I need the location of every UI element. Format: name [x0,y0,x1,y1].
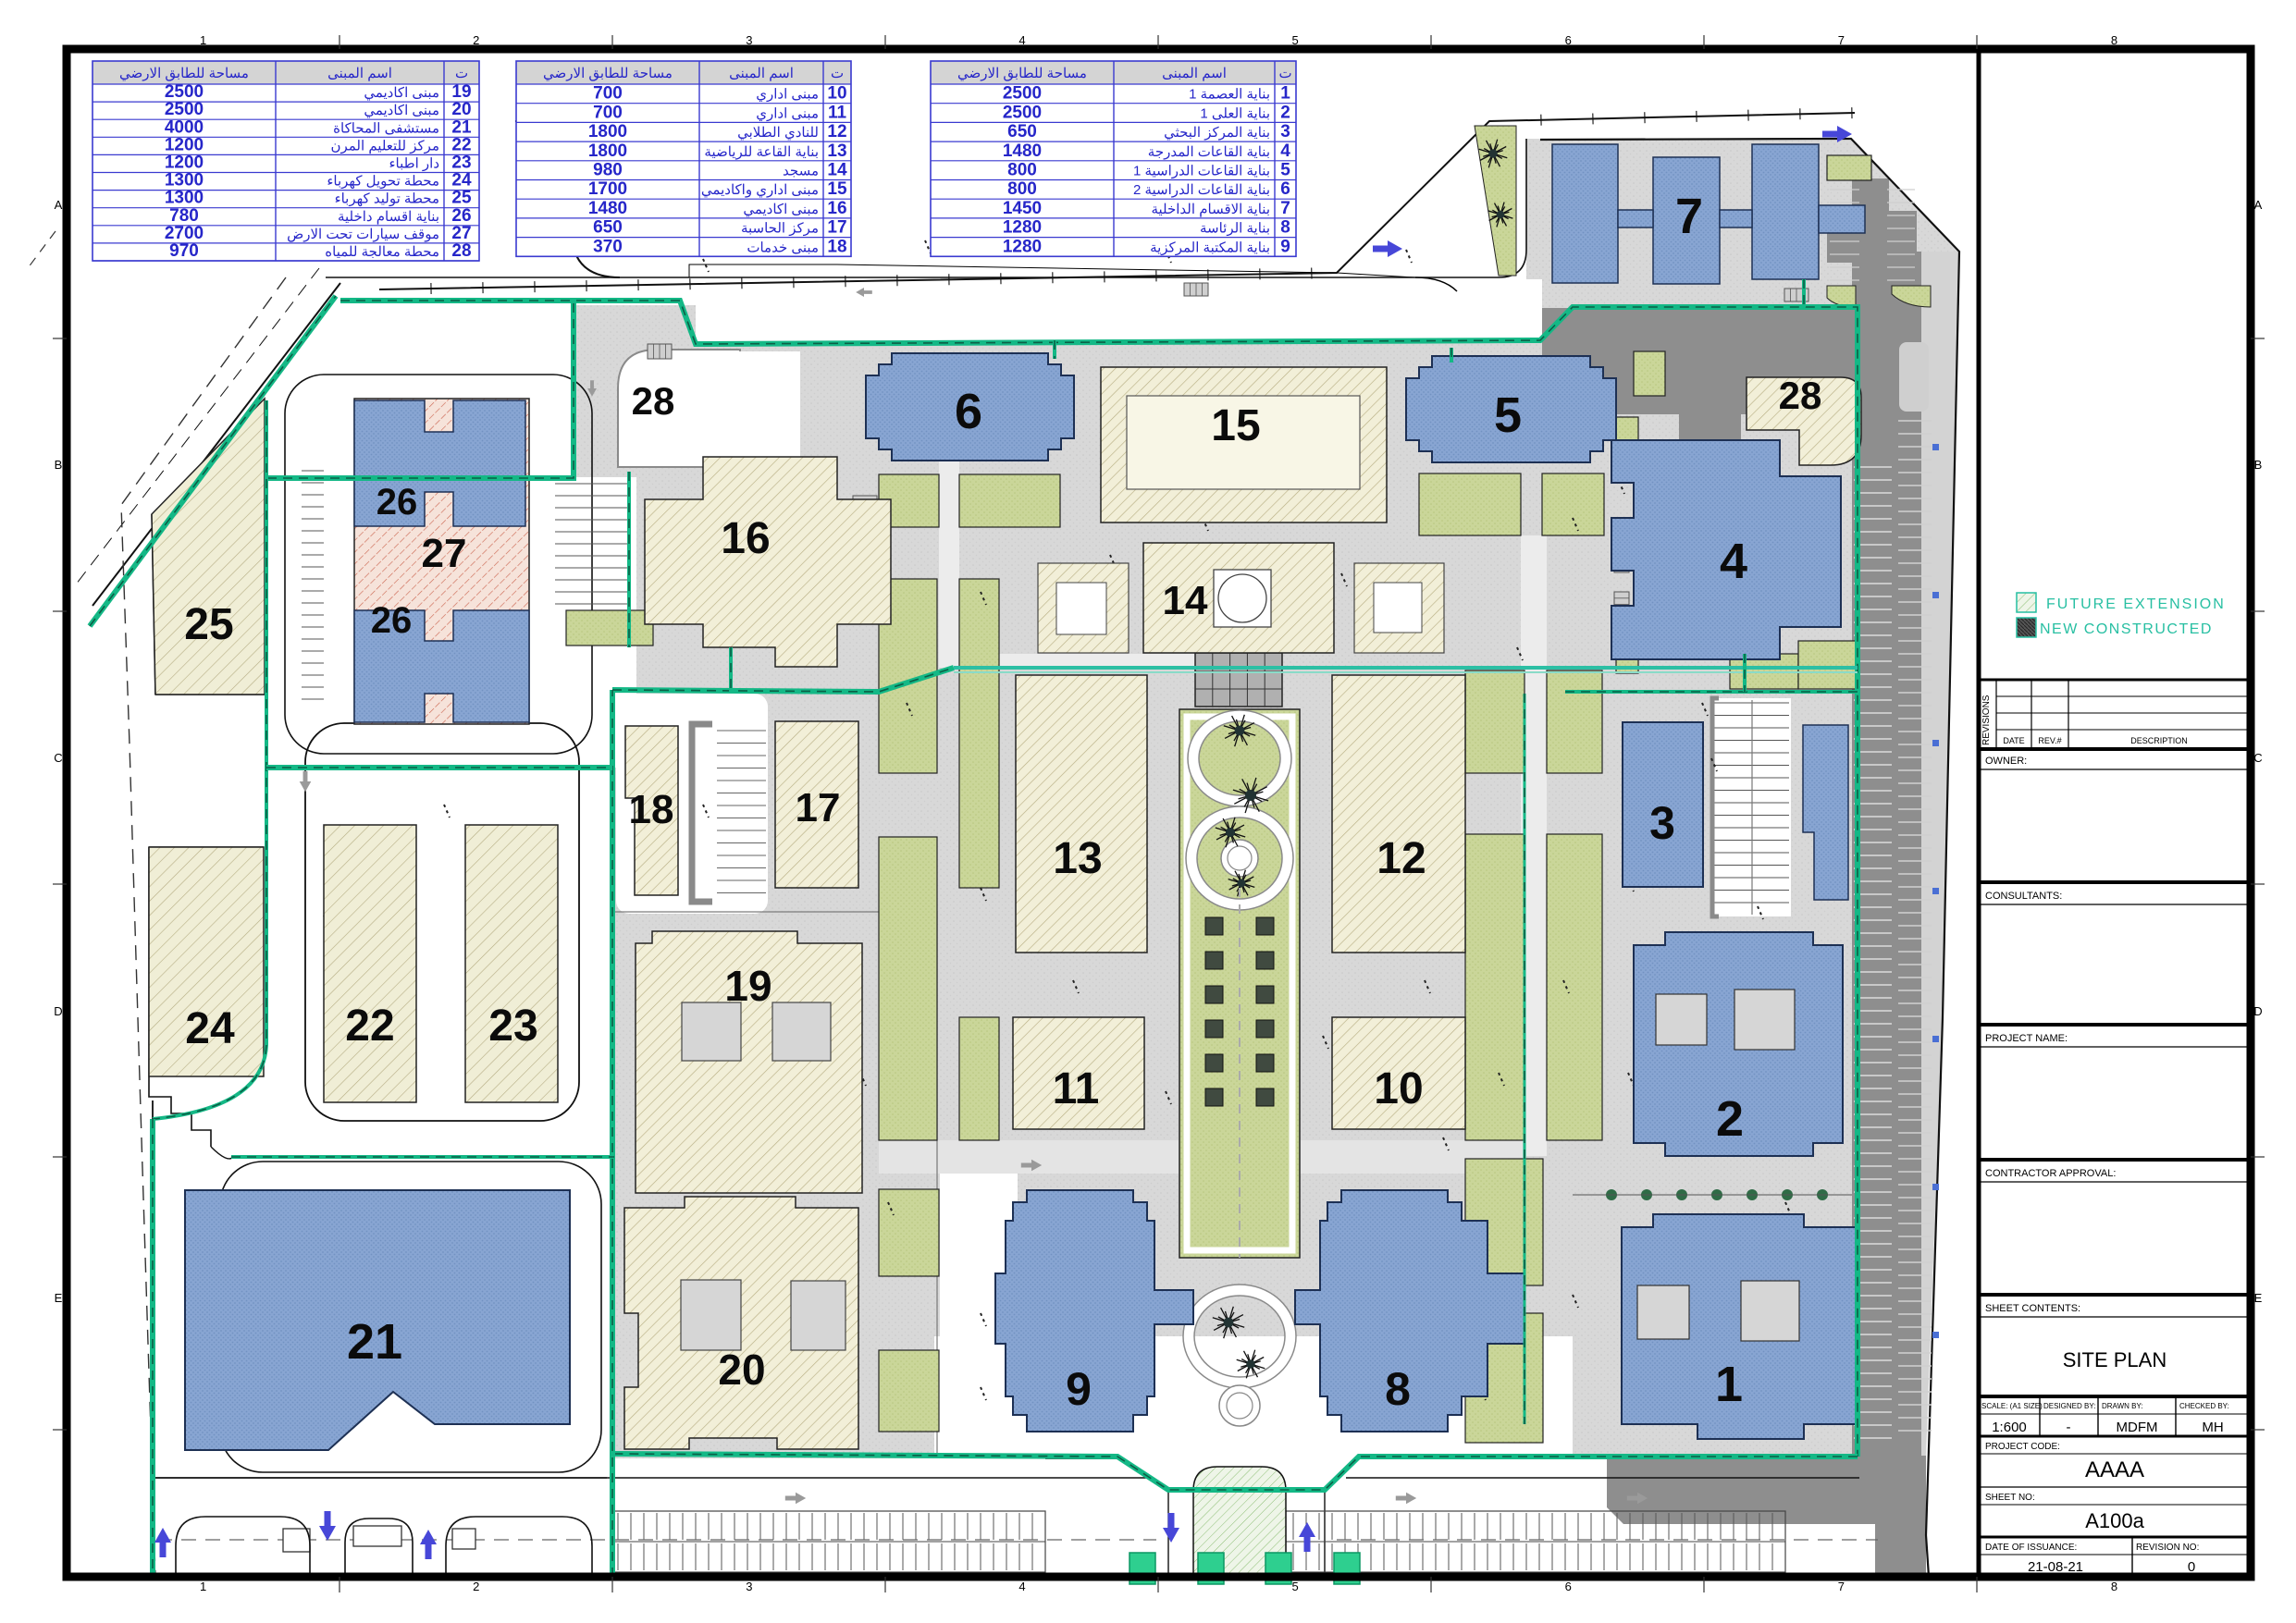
svg-text:5: 5 [1291,33,1298,47]
svg-text:4: 4 [1018,1580,1025,1593]
svg-text:D: D [2253,1004,2262,1018]
svg-text:2500: 2500 [1003,103,1042,122]
svg-text:SHEET CONTENTS:: SHEET CONTENTS: [1985,1303,2080,1314]
svg-text:8: 8 [2111,33,2117,47]
svg-text:16: 16 [721,514,770,563]
svg-text:بناية العلى 1: بناية العلى 1 [1200,105,1270,121]
svg-text:13: 13 [827,141,846,161]
svg-text:9: 9 [1280,237,1290,256]
svg-text:D: D [54,1004,62,1018]
svg-text:11: 11 [828,103,847,122]
svg-text:1200: 1200 [165,135,204,154]
svg-text:بناية القاعات المدرجة: بناية القاعات المدرجة [1148,144,1270,160]
svg-text:B: B [2254,458,2263,472]
svg-text:SITE PLAN: SITE PLAN [2063,1348,2166,1371]
svg-text:بناية القاعات الدراسية 2: بناية القاعات الدراسية 2 [1133,182,1270,198]
svg-text:B: B [55,458,63,472]
svg-text:NEW CONSTRUCTED: NEW CONSTRUCTED [2040,621,2213,637]
svg-text:بناية المكتبة المركزية: بناية المكتبة المركزية [1150,240,1270,255]
svg-text:8: 8 [1280,218,1290,238]
svg-text:C: C [2253,751,2262,765]
svg-text:1480: 1480 [1003,141,1042,161]
svg-text:8: 8 [2111,1580,2117,1593]
svg-text:2: 2 [1716,1091,1744,1147]
svg-text:DESIGNED BY:: DESIGNED BY: [2043,1402,2095,1410]
svg-text:700: 700 [593,84,623,104]
svg-text:MDFM: MDFM [2117,1420,2158,1435]
svg-text:0: 0 [2188,1559,2195,1575]
svg-text:6: 6 [955,384,982,439]
svg-text:ت: ت [455,66,468,81]
svg-text:للنادي الطلابي: للنادي الطلابي [737,125,819,141]
svg-text:A: A [2254,198,2263,212]
svg-text:3: 3 [746,33,752,47]
svg-text:5: 5 [1280,161,1290,180]
svg-text:ت: ت [831,66,844,81]
svg-text:17: 17 [827,218,846,238]
svg-text:28: 28 [451,241,471,261]
svg-text:15: 15 [1211,401,1260,450]
svg-text:مساحة للطابق الارضي: مساحة للطابق الارضي [957,66,1087,81]
svg-text:1700: 1700 [588,179,627,199]
svg-text:AAAA: AAAA [2085,1457,2144,1482]
svg-text:OWNER:: OWNER: [1985,756,2027,767]
svg-text:25: 25 [184,600,233,649]
svg-text:4: 4 [1018,33,1025,47]
svg-text:اسم المبنى: اسم المبنى [327,66,392,81]
svg-text:23: 23 [451,154,471,173]
svg-text:1300: 1300 [165,171,204,191]
svg-text:19: 19 [724,962,772,1010]
svg-text:22: 22 [345,1002,394,1051]
svg-text:1450: 1450 [1003,199,1042,218]
svg-text:PROJECT CODE:: PROJECT CODE: [1985,1442,2060,1452]
svg-text:2700: 2700 [165,224,204,243]
svg-text:اسم المبنى: اسم المبنى [1162,66,1227,81]
svg-text:28: 28 [632,379,675,423]
svg-text:مساحة للطابق الارضي: مساحة للطابق الارضي [543,66,673,81]
svg-text:370: 370 [593,237,623,256]
svg-text:6: 6 [1565,1580,1572,1593]
svg-text:27: 27 [451,224,471,243]
svg-text:700: 700 [593,103,623,122]
svg-text:5: 5 [1291,1580,1298,1593]
svg-text:FUTURE EXTENSION: FUTURE EXTENSION [2046,596,2226,612]
svg-text:مركز للتعليم المرن: مركز للتعليم المرن [330,138,439,154]
svg-text:10: 10 [1374,1064,1423,1113]
svg-text:مبنى اداري واكاديمي: مبنى اداري واكاديمي [701,182,819,198]
svg-text:بناية اقسام داخلية: بناية اقسام داخلية [338,209,439,225]
svg-text:1: 1 [1280,84,1290,104]
svg-text:1280: 1280 [1003,218,1042,238]
svg-text:1: 1 [200,1580,206,1593]
svg-text:6: 6 [1280,179,1290,199]
svg-text:11: 11 [1053,1064,1100,1113]
svg-text:بناية الرئاسة: بناية الرئاسة [1200,221,1270,237]
svg-text:C: C [54,751,62,765]
svg-text:970: 970 [169,241,199,261]
svg-text:3: 3 [1649,797,1675,849]
svg-text:2: 2 [1280,103,1290,122]
svg-text:4000: 4000 [165,117,204,137]
svg-text:16: 16 [827,199,846,218]
svg-text:19: 19 [451,82,471,102]
svg-text:A: A [55,198,63,212]
svg-text:650: 650 [593,218,623,238]
svg-text:7: 7 [1838,1580,1845,1593]
svg-text:2500: 2500 [165,82,204,102]
svg-text:1280: 1280 [1003,237,1042,256]
svg-text:12: 12 [1376,834,1426,883]
svg-text:7: 7 [1675,189,1703,244]
svg-text:25: 25 [451,189,472,208]
svg-text:REV.#: REV.# [2038,736,2061,745]
svg-text:21-08-21: 21-08-21 [2028,1559,2083,1575]
svg-text:DATE: DATE [2003,736,2024,745]
svg-text:14: 14 [827,161,847,180]
svg-text:18: 18 [629,787,674,832]
svg-text:21: 21 [451,117,472,137]
svg-text:محطة توليد كهرباء: محطة توليد كهرباء [335,191,439,207]
svg-text:DESCRIPTION: DESCRIPTION [2130,736,2188,745]
svg-text:1: 1 [1715,1357,1743,1412]
svg-text:مستشفى المحاكاة: مستشفى المحاكاة [333,120,439,136]
svg-text:28: 28 [1779,374,1822,417]
svg-text:13: 13 [1053,834,1102,883]
svg-text:7: 7 [1838,33,1845,47]
svg-text:مبنى اكاديمي: مبنى اكاديمي [364,103,439,118]
svg-text:بناية القاعة للرياضية: بناية القاعة للرياضية [704,144,819,160]
svg-text:1:600: 1:600 [1992,1420,2027,1435]
svg-text:مساحة للطابق الارضي: مساحة للطابق الارضي [119,66,249,81]
svg-text:9: 9 [1066,1363,1092,1415]
svg-text:REVISION NO:: REVISION NO: [2136,1543,2199,1553]
svg-text:SHEET NO:: SHEET NO: [1985,1493,2035,1503]
svg-text:مبنى اداري: مبنى اداري [756,87,819,103]
svg-text:CHECKED BY:: CHECKED BY: [2179,1402,2229,1410]
svg-text:DATE OF ISSUANCE:: DATE OF ISSUANCE: [1985,1543,2077,1553]
svg-text:A100a: A100a [2085,1509,2144,1532]
svg-text:مسجد: مسجد [783,164,819,179]
svg-text:21: 21 [347,1314,402,1370]
svg-text:2: 2 [473,33,479,47]
svg-text:ت: ت [1278,66,1291,81]
svg-text:20: 20 [718,1346,765,1394]
svg-text:مبنى خدمات: مبنى خدمات [747,240,819,255]
svg-text:بناية الاقسام الداخلية: بناية الاقسام الداخلية [1151,202,1270,217]
svg-text:17: 17 [796,785,841,830]
svg-text:3: 3 [1280,122,1290,141]
svg-text:موقف سيارات تحت الارض: موقف سيارات تحت الارض [287,227,439,242]
svg-text:E: E [55,1291,63,1305]
svg-text:CONSULTANTS:: CONSULTANTS: [1985,891,2062,902]
svg-text:بناية المركز البحثي: بناية المركز البحثي [1164,125,1270,141]
svg-text:مبنى اكاديمي: مبنى اكاديمي [364,85,439,101]
svg-text:بناية القاعات الدراسية 1: بناية القاعات الدراسية 1 [1133,164,1270,179]
svg-text:دار اطباء: دار اطباء [389,156,439,172]
svg-text:3: 3 [746,1580,752,1593]
svg-text:MH: MH [2202,1420,2223,1435]
svg-text:650: 650 [1007,122,1037,141]
svg-text:23: 23 [488,1002,537,1051]
svg-text:26: 26 [451,206,471,226]
svg-text:2500: 2500 [165,100,204,119]
svg-text:27: 27 [422,531,467,576]
svg-text:8: 8 [1385,1363,1411,1415]
svg-text:5: 5 [1494,387,1522,443]
svg-text:PROJECT NAME:: PROJECT NAME: [1985,1033,2068,1044]
svg-text:اسم المبنى: اسم المبنى [729,66,794,81]
svg-text:24: 24 [185,1004,235,1053]
svg-text:CONTRACTOR APPROVAL:: CONTRACTOR APPROVAL: [1985,1168,2116,1179]
svg-text:4: 4 [1280,141,1290,161]
svg-text:980: 980 [593,161,623,180]
svg-text:مبنى اكاديمي: مبنى اكاديمي [743,202,819,217]
svg-text:REVISIONS: REVISIONS [1981,695,1992,745]
svg-text:مركز الحاسبة: مركز الحاسبة [741,221,819,237]
svg-text:14: 14 [1163,578,1208,623]
svg-text:7: 7 [1280,199,1290,218]
svg-text:24: 24 [451,171,472,191]
svg-text:18: 18 [827,237,846,256]
svg-text:DRAWN BY:: DRAWN BY: [2102,1402,2143,1410]
svg-text:2500: 2500 [1003,84,1042,104]
svg-text:12: 12 [827,122,846,141]
svg-text:محطة معالجة للمياه: محطة معالجة للمياه [325,244,439,260]
svg-text:1300: 1300 [165,189,204,208]
svg-text:26: 26 [376,482,418,523]
svg-text:2: 2 [473,1580,479,1593]
svg-text:22: 22 [451,135,471,154]
svg-text:مبنى اداري: مبنى اداري [756,105,819,121]
svg-text:10: 10 [827,84,846,104]
svg-text:1800: 1800 [588,141,627,161]
svg-text:6: 6 [1565,33,1572,47]
svg-text:1480: 1480 [588,199,627,218]
svg-text:محطة تحويل كهرباء: محطة تحويل كهرباء [327,174,439,190]
svg-text:SCALE: (A1 SIZE): SCALE: (A1 SIZE) [1981,1402,2043,1410]
svg-text:20: 20 [451,100,471,119]
svg-text:بناية العصمة 1: بناية العصمة 1 [1189,87,1270,103]
svg-text:E: E [2254,1291,2263,1305]
svg-text:800: 800 [1007,161,1037,180]
svg-text:1: 1 [200,33,206,47]
svg-text:4: 4 [1720,534,1747,589]
svg-text:-: - [2067,1420,2071,1435]
svg-text:780: 780 [169,206,199,226]
svg-text:1200: 1200 [165,154,204,173]
svg-text:26: 26 [371,600,413,641]
svg-text:800: 800 [1007,179,1037,199]
svg-text:1800: 1800 [588,122,627,141]
svg-text:15: 15 [827,179,847,199]
